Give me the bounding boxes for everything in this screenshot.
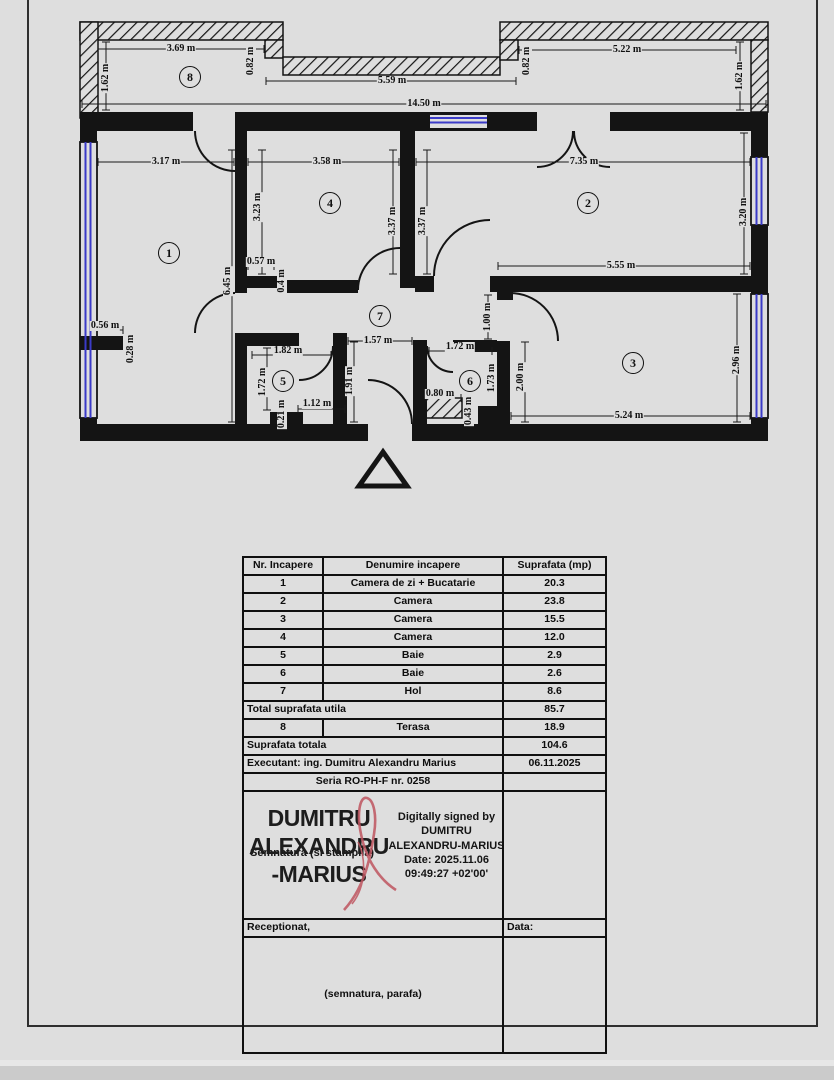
apartment-area-table: Nr. IncapereDenumire incapereSuprafata (… xyxy=(242,556,607,1054)
signature-empty-cell xyxy=(503,791,606,919)
scan-edge-shade-dark xyxy=(0,1066,834,1080)
table-cell: Camera xyxy=(323,611,503,629)
semnatura-parafa-note: (semnatura, parafa) xyxy=(246,989,500,1000)
table-cell: Baie xyxy=(323,665,503,683)
data-label: Data: xyxy=(503,919,606,937)
table-cell: 3 xyxy=(243,611,323,629)
data-empty-cell xyxy=(503,937,606,1053)
semnatura-parafa-cell: (semnatura, parafa) xyxy=(243,937,503,1053)
receptionat-label: Receptionat, xyxy=(243,919,503,937)
table-cell: Terasa xyxy=(323,719,503,737)
reception-header-row: Receptionat, Data: xyxy=(243,919,606,937)
table-cell: Hol xyxy=(323,683,503,701)
table-row: Seria RO-PH-F nr. 0258 xyxy=(243,773,606,791)
table-cell: Denumire incapere xyxy=(323,557,503,575)
table-cell: Suprafata totala xyxy=(243,737,503,755)
table-cell: Suprafata (mp) xyxy=(503,557,606,575)
table-row: 3Camera15.5 xyxy=(243,611,606,629)
table-row: 5Baie2.9 xyxy=(243,647,606,665)
table-cell: 12.0 xyxy=(503,629,606,647)
table-cell: Executant: ing. Dumitru Alexandru Marius xyxy=(243,755,503,773)
table-cell: 5 xyxy=(243,647,323,665)
table-cell: 18.9 xyxy=(503,719,606,737)
table-row: 8Terasa18.9 xyxy=(243,719,606,737)
table-cell xyxy=(503,773,606,791)
table-cell: Camera de zi + Bucatarie xyxy=(323,575,503,593)
table-row: 2Camera23.8 xyxy=(243,593,606,611)
floor-plan-drawing xyxy=(0,0,834,540)
table-cell: 23.8 xyxy=(503,593,606,611)
table-row: Nr. IncapereDenumire incapereSuprafata (… xyxy=(243,557,606,575)
table-cell: 06.11.2025 xyxy=(503,755,606,773)
table-cell: Nr. Incapere xyxy=(243,557,323,575)
table-cell: 1 xyxy=(243,575,323,593)
digital-signature-block: Semnatura (si stampila) DUMITRU ALEXANDR… xyxy=(246,792,500,918)
table-cell: 2.9 xyxy=(503,647,606,665)
table-row: 7Hol8.6 xyxy=(243,683,606,701)
table-row: 4Camera12.0 xyxy=(243,629,606,647)
table-cell: 2.6 xyxy=(503,665,606,683)
table-row: 6Baie2.6 xyxy=(243,665,606,683)
table-cell: 8.6 xyxy=(503,683,606,701)
walls xyxy=(80,112,768,441)
signature-row: Semnatura (si stampila) DUMITRU ALEXANDR… xyxy=(243,791,606,919)
table-row: Total suprafata utila85.7 xyxy=(243,701,606,719)
table-cell: 85.7 xyxy=(503,701,606,719)
table-cell: Total suprafata utila xyxy=(243,701,503,719)
reception-signature-row: (semnatura, parafa) xyxy=(243,937,606,1053)
table-cell: 8 xyxy=(243,719,323,737)
table-cell: 7 xyxy=(243,683,323,701)
table-cell: 20.3 xyxy=(503,575,606,593)
table-row: Executant: ing. Dumitru Alexandru Marius… xyxy=(243,755,606,773)
table-cell: Seria RO-PH-F nr. 0258 xyxy=(243,773,503,791)
table-cell: 6 xyxy=(243,665,323,683)
entrance-triangle-icon xyxy=(359,452,407,486)
floor-plan: 3.69 m1.62 m0.82 m5.59 m14.50 m5.22 m0.8… xyxy=(0,0,834,540)
table-cell: 2 xyxy=(243,593,323,611)
table-cell: 4 xyxy=(243,629,323,647)
table-cell: Baie xyxy=(323,647,503,665)
table-row: 1Camera de zi + Bucatarie20.3 xyxy=(243,575,606,593)
table-cell: 15.5 xyxy=(503,611,606,629)
document-page: 3.69 m1.62 m0.82 m5.59 m14.50 m5.22 m0.8… xyxy=(0,0,834,1080)
adobe-signature-ribbon-icon xyxy=(332,792,404,918)
table-row: Suprafata totala104.6 xyxy=(243,737,606,755)
table-cell: Camera xyxy=(323,629,503,647)
table-cell: 104.6 xyxy=(503,737,606,755)
table-cell: Camera xyxy=(323,593,503,611)
